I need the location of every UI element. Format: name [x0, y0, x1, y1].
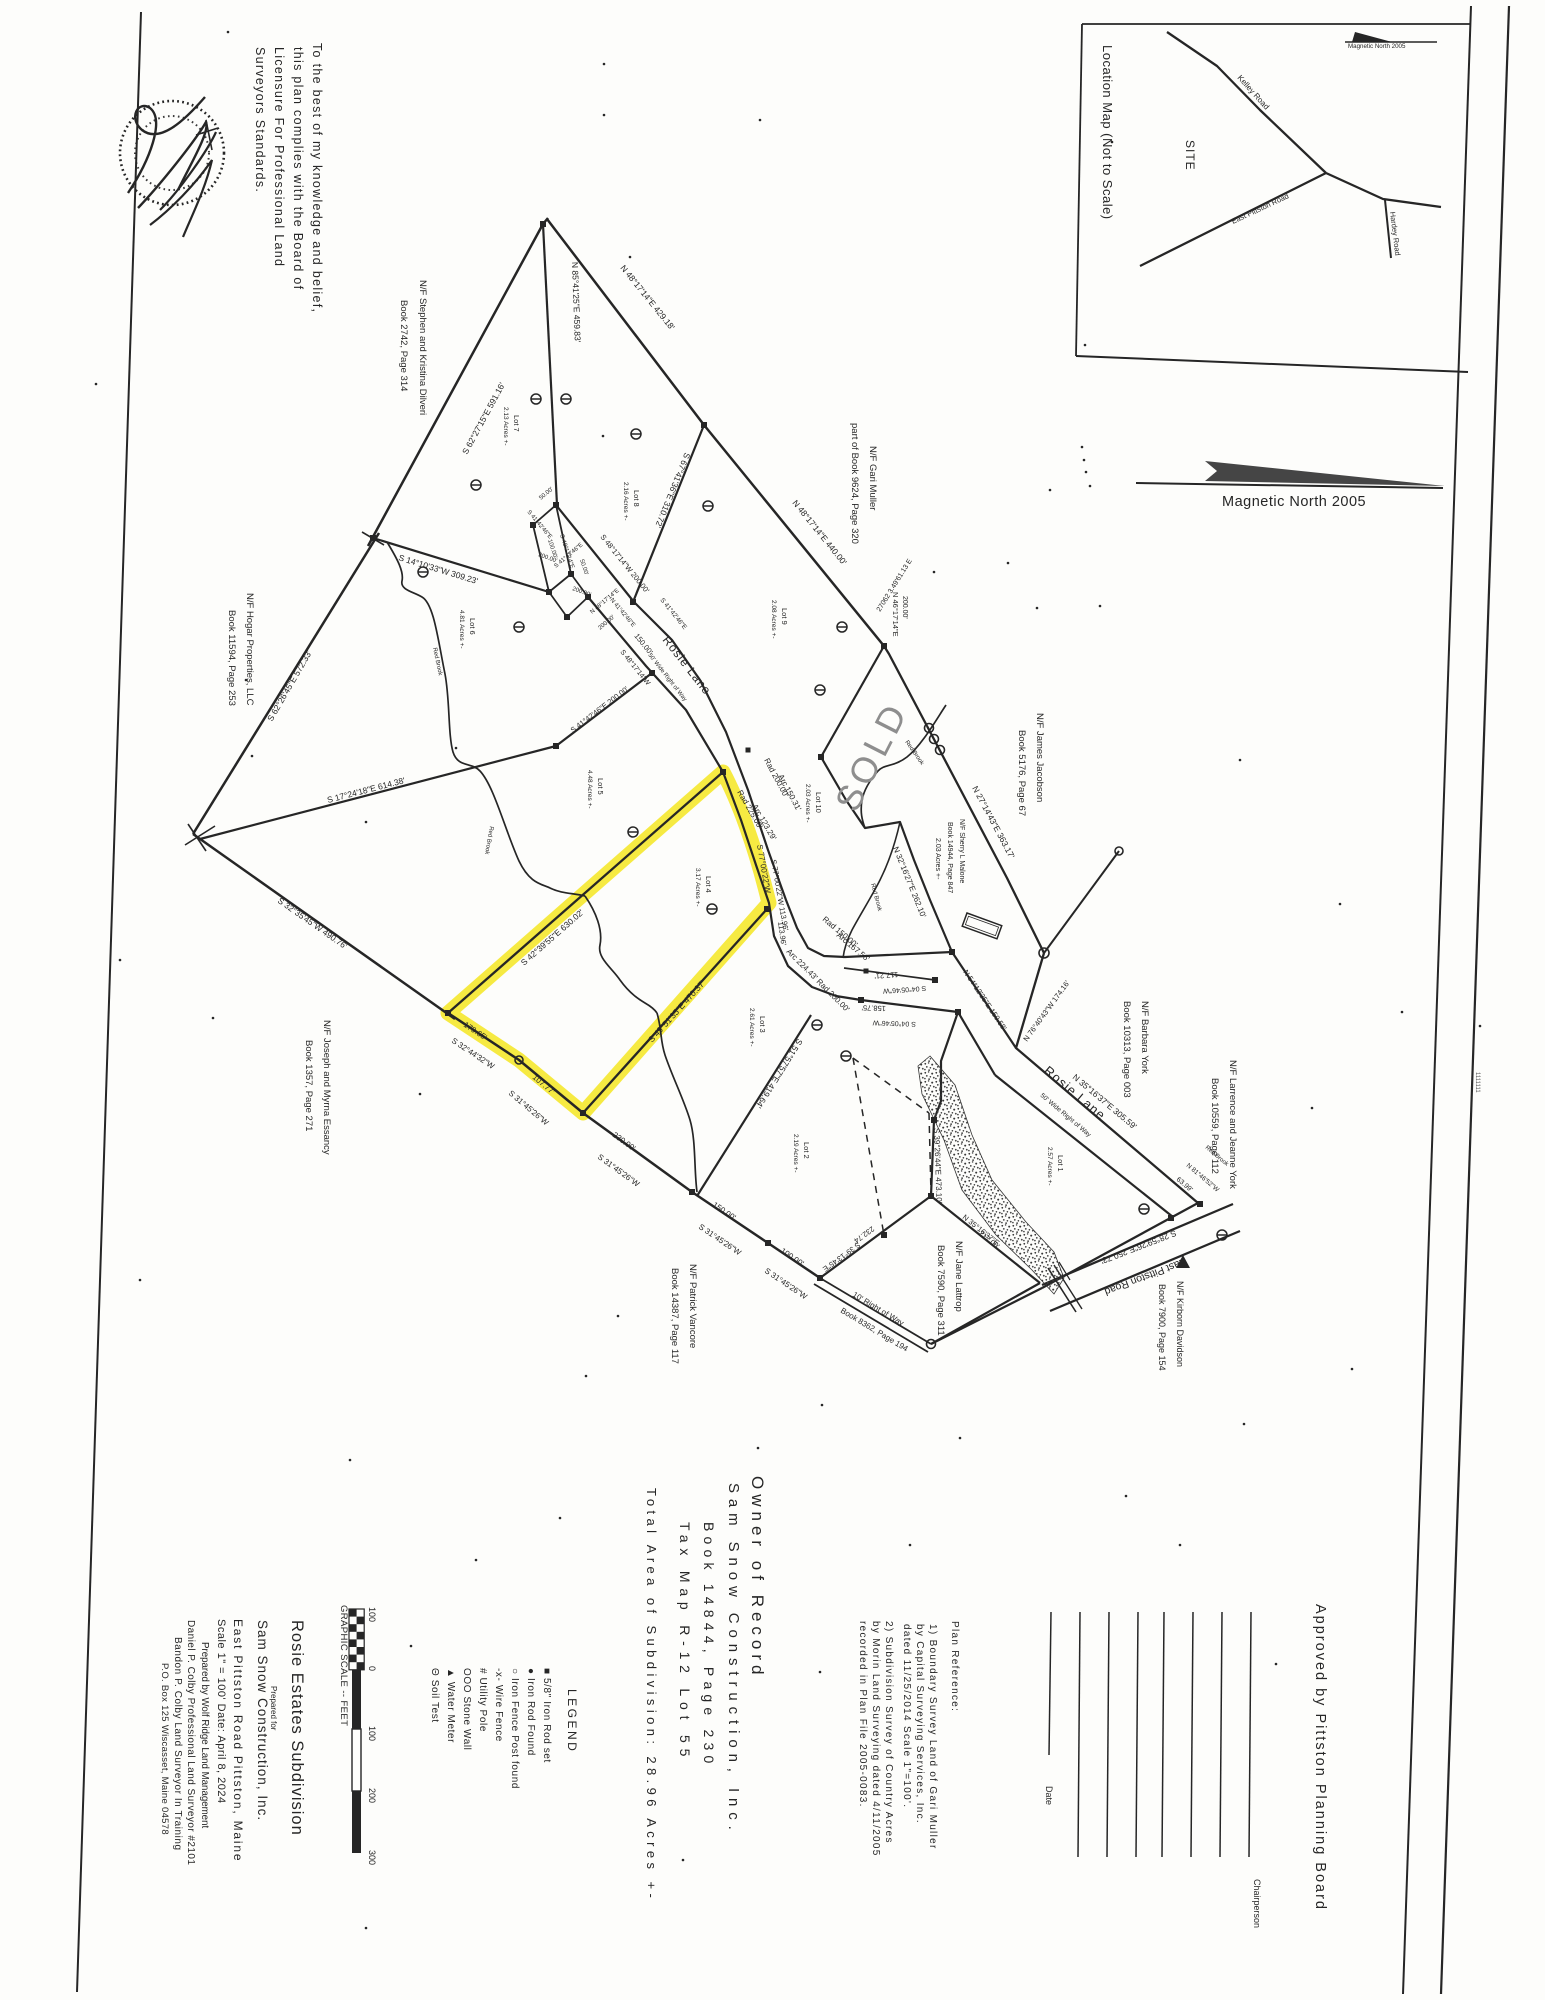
svg-text:Book 14944, Page 847: Book 14944, Page 847 — [946, 822, 953, 893]
svg-text:200.00': 200.00' — [901, 596, 908, 619]
svg-text:S 04°05'46"W: S 04°05'46"W — [872, 1018, 916, 1028]
svg-text:Total Area of Subdivision: 28.: Total Area of Subdivision: 28.96 Acres +… — [644, 1488, 659, 1902]
svg-text:● Iron Rod Found: ● Iron Rod Found — [525, 1668, 536, 1756]
svg-text:To the best of my knowledge an: To the best of my knowledge and belief, — [310, 43, 324, 313]
svg-text:# Utility Pole: # Utility Pole — [477, 1668, 488, 1732]
svg-text:N/F Hogar Properties, LLC: N/F Hogar Properties, LLC — [244, 593, 255, 706]
svg-text:recorded in Plan File 2005-008: recorded in Plan File 2005-0083. — [857, 1621, 868, 1808]
svg-text:Licensure For Professional Lan: Licensure For Professional Land — [272, 47, 286, 267]
svg-text:200: 200 — [367, 1788, 377, 1803]
svg-text:Lot 5: Lot 5 — [596, 778, 605, 795]
svg-text:Location Map (Not to Scale): Location Map (Not to Scale) — [1100, 45, 1115, 220]
svg-text:P.O. Box 125 Wiscasset, Maine: P.O. Box 125 Wiscasset, Maine 04578 — [159, 1663, 170, 1835]
svg-text:Sam Snow Construction, Inc.: Sam Snow Construction, Inc. — [255, 1620, 270, 1821]
svg-text:Lot 7: Lot 7 — [512, 415, 521, 432]
svg-text:2.19 Acres +-: 2.19 Acres +- — [792, 1134, 799, 1172]
svg-text:-x- Wire Fence: -x- Wire Fence — [493, 1668, 504, 1742]
svg-text:Book 14387, Page 117: Book 14387, Page 117 — [669, 1268, 680, 1364]
svg-text:0: 0 — [367, 1666, 377, 1671]
svg-text:GRAPHIC SCALE -- FEET: GRAPHIC SCALE -- FEET — [338, 1605, 349, 1726]
svg-text:Book 14844, Page 230: Book 14844, Page 230 — [701, 1522, 717, 1768]
svg-text:Plan Reference:: Plan Reference: — [949, 1621, 960, 1712]
svg-text:2) Subdivision Survey of Count: 2) Subdivision Survey of Country Acres — [883, 1621, 894, 1844]
svg-text:Book 10313, Page 003: Book 10313, Page 003 — [1121, 1001, 1132, 1098]
svg-text:100: 100 — [367, 1607, 377, 1622]
svg-text:1111111: 1111111 — [1474, 1072, 1480, 1093]
svg-text:Approved by Pittston Planning: Approved by Pittston Planning Board — [1312, 1604, 1328, 1911]
svg-text:SITE: SITE — [1183, 140, 1197, 171]
svg-text:Sam Snow Construction, Inc.: Sam Snow Construction, Inc. — [725, 1483, 742, 1836]
svg-text:by Morin Land Surveying dated: by Morin Land Surveying dated 4/11/2005 — [870, 1621, 881, 1857]
svg-text:this plan complies with the Bo: this plan complies with the Board of — [291, 47, 305, 290]
svg-text:Book 7590, Page 311: Book 7590, Page 311 — [935, 1245, 946, 1336]
svg-text:2.57 Acres +-: 2.57 Acres +- — [1046, 1147, 1053, 1185]
svg-text:part of Book 9624, Page 320: part of Book 9624, Page 320 — [849, 423, 860, 544]
svg-text:N/F Kirborn Davidson: N/F Kirborn Davidson — [1175, 1281, 1185, 1367]
svg-text:N/F Stephen and Kristina Dilve: N/F Stephen and Kristina Dilveri — [417, 280, 428, 415]
svg-text:4.81 Acres +-: 4.81 Acres +- — [458, 610, 465, 648]
svg-text:■ 5/8" Iron Rod set: ■ 5/8" Iron Rod set — [541, 1668, 552, 1763]
svg-text:N/F Gari Muller: N/F Gari Muller — [867, 446, 878, 510]
svg-text:N 46°17'14"E: N 46°17'14"E — [891, 592, 900, 637]
svg-text:Lot 1: Lot 1 — [1056, 1155, 1065, 1172]
svg-text:OOO Stone Wall: OOO Stone Wall — [461, 1668, 472, 1751]
svg-text:N/F Jane Lattrop: N/F Jane Lattrop — [953, 1241, 964, 1312]
svg-text:Tax Map R-12 Lot 55: Tax Map R-12 Lot 55 — [677, 1522, 693, 1762]
svg-text:Lot 8: Lot 8 — [632, 490, 641, 507]
svg-text:Lot 3: Lot 3 — [758, 1016, 767, 1033]
svg-text:158.75': 158.75' — [861, 1003, 886, 1013]
svg-text:Lot 2: Lot 2 — [802, 1142, 811, 1159]
svg-text:1) Boundary Survey Land of Gar: 1) Boundary Survey Land of Gari Muller — [927, 1624, 938, 1850]
svg-text:Lot 10: Lot 10 — [814, 792, 823, 813]
svg-text:East Pittston Road Pittston,: East Pittston Road Pittston, Maine — [231, 1619, 245, 1862]
svg-text:Lot 4: Lot 4 — [704, 876, 713, 893]
svg-text:Θ Soil Test: Θ Soil Test — [429, 1668, 440, 1723]
svg-text:by Capital Surveying Services,: by Capital Surveying Services, Inc. — [914, 1624, 925, 1824]
svg-text:2.61 Acres +-: 2.61 Acres +- — [748, 1008, 755, 1046]
svg-text:Book 7900, Page 154: Book 7900, Page 154 — [1157, 1284, 1167, 1371]
svg-text:Bandon P. Colby Land Survey: Bandon P. Colby Land Surveyor In Trainin… — [172, 1637, 183, 1851]
svg-text:2.16 Acres +-: 2.16 Acres +- — [622, 482, 629, 520]
svg-text:117.21': 117.21' — [874, 970, 899, 981]
svg-text:Lot 9: Lot 9 — [780, 608, 789, 625]
svg-text:N/F Sherry L Malone: N/F Sherry L Malone — [958, 819, 965, 883]
svg-text:Book 11594, Page 253: Book 11594, Page 253 — [226, 610, 237, 706]
svg-text:N/F Joseph and Myrna Essancy: N/F Joseph and Myrna Essancy — [321, 1020, 332, 1155]
svg-text:dated 11/25/2014 Scale 1"=100': dated 11/25/2014 Scale 1"=100'. — [901, 1624, 912, 1808]
svg-text:N/F James Jacobson: N/F James Jacobson — [1034, 713, 1045, 802]
svg-text:2.03 Acres +-: 2.03 Acres +- — [934, 838, 941, 880]
svg-text:Rosie Estates Subdivision: Rosie Estates Subdivision — [288, 1620, 306, 1836]
svg-text:N/F Barbara York: N/F Barbara York — [1139, 1001, 1150, 1074]
svg-text:Magnetic North 2005: Magnetic North 2005 — [1222, 494, 1366, 510]
svg-text:Book 2742, Page 314: Book 2742, Page 314 — [398, 300, 409, 391]
svg-text:4.48 Acres +-: 4.48 Acres +- — [586, 770, 593, 808]
svg-text:Chairperson: Chairperson — [1252, 1879, 1262, 1928]
svg-text:3.17 Acres +-: 3.17 Acres +- — [694, 868, 701, 906]
svg-text:LEGEND: LEGEND — [565, 1689, 579, 1753]
svg-text:Lot 6: Lot 6 — [468, 618, 477, 635]
svg-text:2.03 Acres +-: 2.03 Acres +- — [804, 784, 811, 822]
svg-text:N/F Patrick Vancore: N/F Patrick Vancore — [687, 1264, 698, 1348]
svg-text:2.13 Acres +-: 2.13 Acres +- — [502, 407, 509, 445]
svg-text:300: 300 — [367, 1850, 377, 1865]
svg-text:Prepared by Wolf Ridge Land Ma: Prepared by Wolf Ridge Land Management — [199, 1642, 210, 1828]
svg-text:Scale 1" = 100' Date:: Scale 1" = 100' Date: April 8, 2024 — [215, 1619, 227, 1804]
svg-text:Magnetic North 2005: Magnetic North 2005 — [1348, 43, 1406, 50]
svg-text:▲ Water Meter: ▲ Water Meter — [445, 1668, 456, 1743]
svg-text:Daniel P. Colby Professional L: Daniel P. Colby Professional Land Survey… — [185, 1620, 196, 1865]
svg-text:100: 100 — [367, 1726, 377, 1741]
svg-text:Owner of Record: Owner of Record — [748, 1476, 767, 1680]
svg-text:○ Iron Fence Post found: ○ Iron Fence Post found — [509, 1668, 520, 1789]
svg-text:Date: Date — [1044, 1786, 1054, 1805]
svg-text:Book 1357, Page 271: Book 1357, Page 271 — [303, 1040, 314, 1131]
svg-text:Book 5176, Page 67: Book 5176, Page 67 — [1016, 730, 1027, 816]
svg-text:Surveyors Standards.: Surveyors Standards. — [253, 47, 267, 193]
svg-text:2.08 Acres +-: 2.08 Acres +- — [770, 600, 777, 638]
svg-text:N/F Larrence and Jeanne York: N/F Larrence and Jeanne York — [1227, 1060, 1238, 1189]
